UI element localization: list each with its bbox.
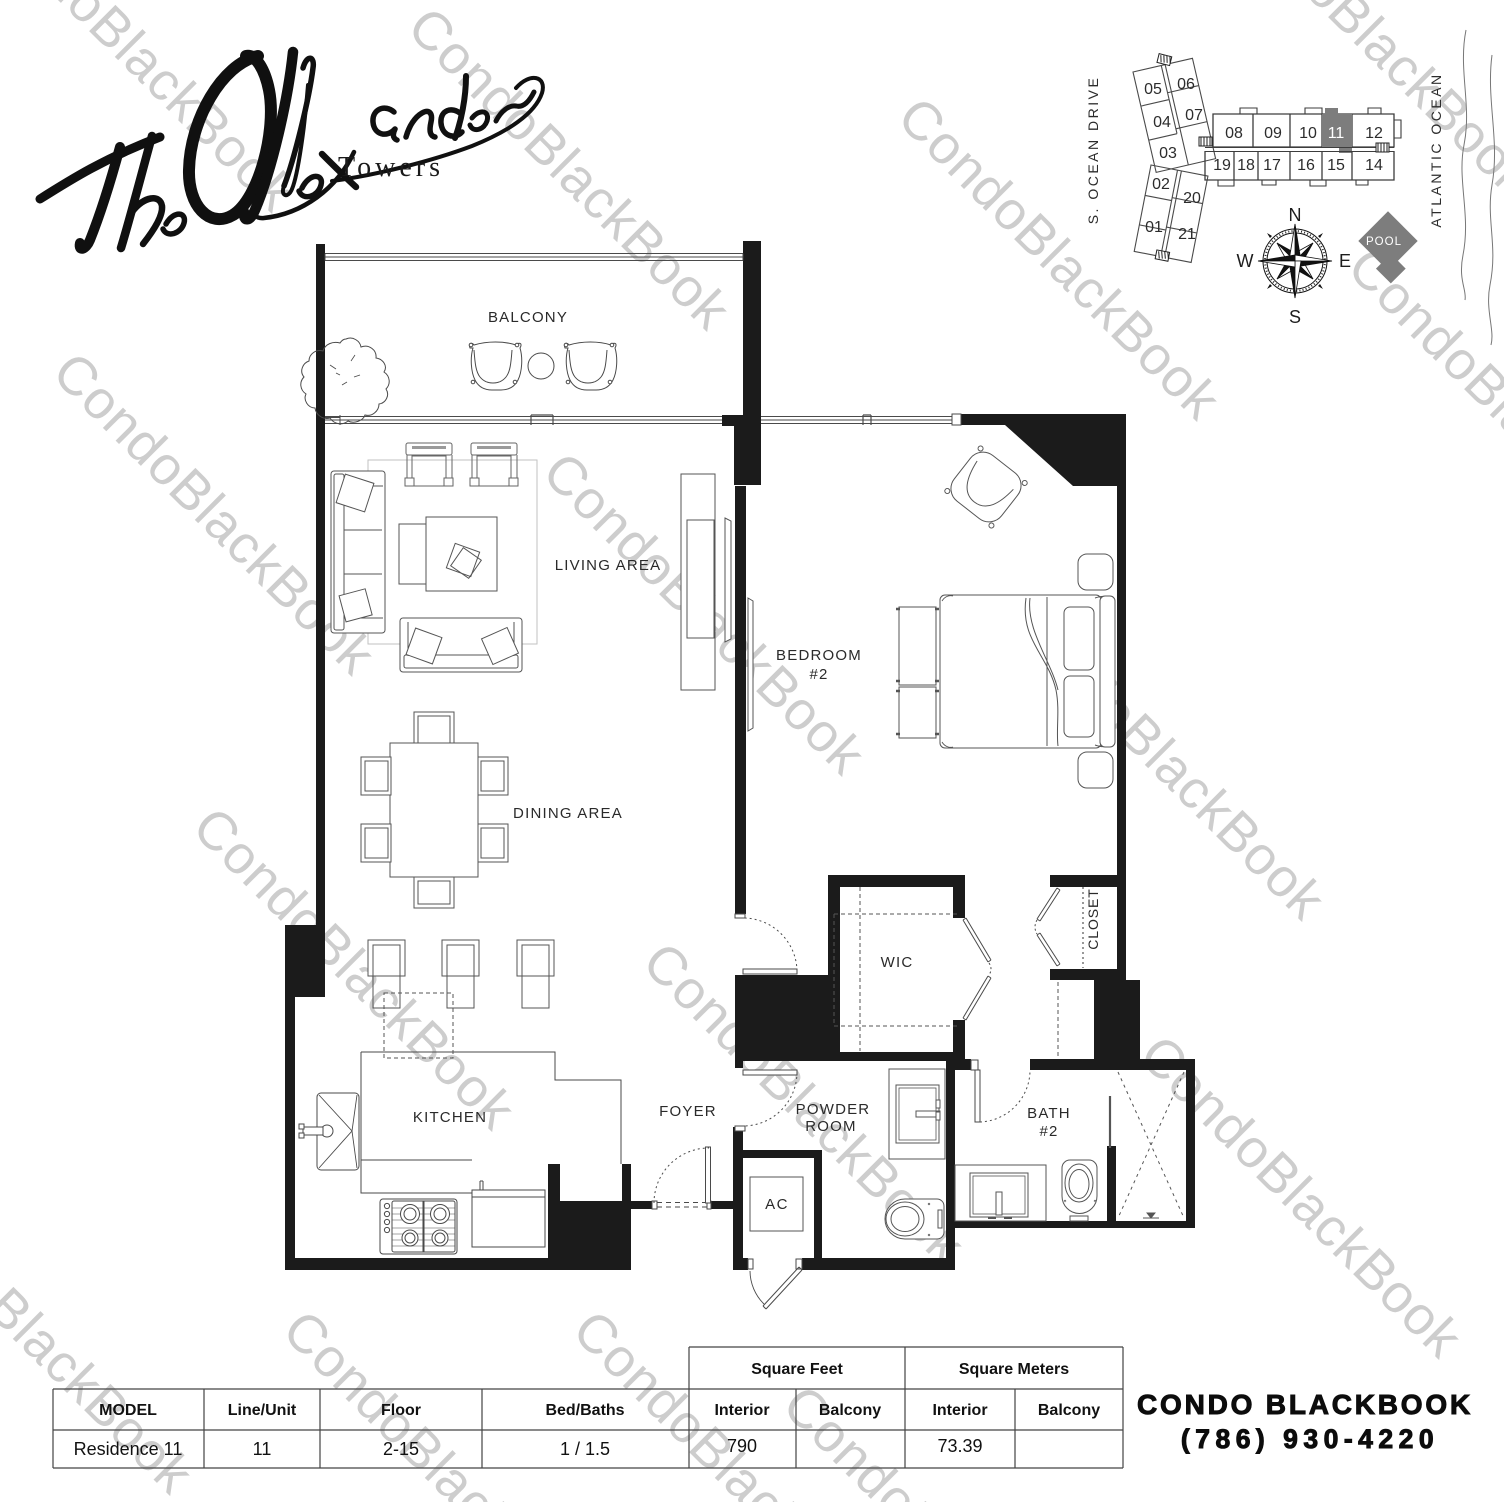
svg-text:16: 16 bbox=[1297, 157, 1315, 174]
svg-text:15: 15 bbox=[1327, 157, 1345, 174]
svg-text:CondoBlackBook: CondoBlackBook bbox=[397, 0, 742, 341]
svg-text:06: 06 bbox=[1177, 76, 1195, 93]
svg-text:(786) 930-4220: (786) 930-4220 bbox=[1181, 1424, 1439, 1454]
svg-text:08: 08 bbox=[1225, 125, 1243, 142]
svg-text:Square Meters: Square Meters bbox=[959, 1361, 1069, 1378]
svg-text:CondoBlackBook: CondoBlackBook bbox=[1129, 1024, 1474, 1369]
svg-text:BALCONY: BALCONY bbox=[488, 309, 568, 326]
svg-text:MODEL: MODEL bbox=[99, 1402, 157, 1419]
svg-text:FOYER: FOYER bbox=[659, 1103, 717, 1120]
svg-text:790: 790 bbox=[727, 1436, 757, 1456]
svg-text:19: 19 bbox=[1213, 157, 1231, 174]
svg-text:05: 05 bbox=[1144, 81, 1162, 98]
svg-text:W: W bbox=[1237, 251, 1254, 271]
svg-text:18: 18 bbox=[1237, 157, 1255, 174]
svg-text:N: N bbox=[1289, 205, 1302, 225]
svg-text:Square Feet: Square Feet bbox=[751, 1361, 843, 1378]
svg-text:11: 11 bbox=[1328, 125, 1345, 142]
svg-text:#2: #2 bbox=[809, 666, 828, 683]
svg-text:E: E bbox=[1339, 251, 1351, 271]
svg-text:LIVING AREA: LIVING AREA bbox=[555, 557, 662, 574]
svg-text:17: 17 bbox=[1263, 157, 1281, 174]
svg-text:BATH: BATH bbox=[1027, 1105, 1071, 1122]
svg-text:Interior: Interior bbox=[714, 1402, 769, 1419]
svg-text:CondoBlackBook: CondoBlackBook bbox=[887, 86, 1232, 431]
svg-text:ATLANTIC OCEAN: ATLANTIC OCEAN bbox=[1428, 72, 1444, 227]
svg-text:03: 03 bbox=[1159, 145, 1177, 162]
svg-text:AC: AC bbox=[765, 1196, 789, 1213]
svg-text:BEDROOM: BEDROOM bbox=[776, 647, 862, 664]
svg-text:01: 01 bbox=[1145, 219, 1163, 236]
svg-text:04: 04 bbox=[1153, 114, 1171, 131]
svg-text:S. OCEAN DRIVE: S. OCEAN DRIVE bbox=[1085, 76, 1101, 225]
svg-text:ROOM: ROOM bbox=[805, 1118, 856, 1135]
svg-text:WIC: WIC bbox=[881, 954, 914, 971]
svg-text:10: 10 bbox=[1299, 125, 1317, 142]
svg-text:CondoBlackBook: CondoBlackBook bbox=[272, 1299, 617, 1502]
svg-text:POOL: POOL bbox=[1366, 236, 1402, 248]
svg-text:07: 07 bbox=[1185, 107, 1203, 124]
svg-text:20: 20 bbox=[1183, 190, 1201, 207]
svg-text:02: 02 bbox=[1152, 176, 1170, 193]
svg-text:CONDO BLACKBOOK: CONDO BLACKBOOK bbox=[1137, 1389, 1473, 1420]
svg-text:S: S bbox=[1289, 307, 1301, 327]
svg-text:Floor: Floor bbox=[381, 1402, 421, 1419]
svg-text:POWDER: POWDER bbox=[796, 1101, 871, 1118]
svg-text:14: 14 bbox=[1365, 157, 1383, 174]
svg-text:Bed/Baths: Bed/Baths bbox=[545, 1402, 624, 1419]
svg-text:Residence 11: Residence 11 bbox=[74, 1439, 183, 1459]
svg-text:11: 11 bbox=[253, 1439, 272, 1459]
svg-text:CondoBlackBook: CondoBlackBook bbox=[1337, 236, 1504, 581]
svg-text:21: 21 bbox=[1178, 226, 1196, 243]
svg-text:CLOSET: CLOSET bbox=[1085, 888, 1101, 949]
svg-text:Interior: Interior bbox=[932, 1402, 987, 1419]
svg-text:KITCHEN: KITCHEN bbox=[413, 1109, 487, 1126]
svg-text:#2: #2 bbox=[1039, 1123, 1058, 1140]
svg-text:09: 09 bbox=[1264, 125, 1282, 142]
svg-text:Line/Unit: Line/Unit bbox=[228, 1402, 297, 1419]
svg-text:DINING AREA: DINING AREA bbox=[513, 805, 623, 822]
svg-text:Balcony: Balcony bbox=[1038, 1402, 1100, 1419]
svg-text:12: 12 bbox=[1365, 125, 1383, 142]
svg-text:1 / 1.5: 1 / 1.5 bbox=[560, 1439, 610, 1459]
svg-text:Balcony: Balcony bbox=[819, 1402, 881, 1419]
svg-text:Towers: Towers bbox=[338, 152, 444, 183]
svg-text:2-15: 2-15 bbox=[383, 1439, 419, 1459]
svg-text:73.39: 73.39 bbox=[937, 1436, 982, 1456]
